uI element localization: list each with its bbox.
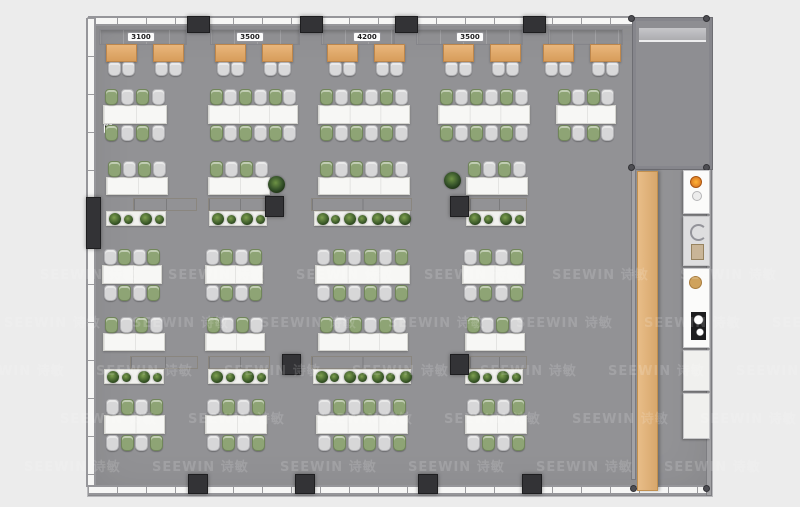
watermark-text: SEEWIN 诗敏 xyxy=(0,360,65,379)
plant-icon xyxy=(226,373,235,382)
office-chair xyxy=(207,399,220,415)
structural-column xyxy=(282,354,301,375)
plant-icon xyxy=(386,373,395,382)
office-chair xyxy=(393,399,406,415)
storage-panel xyxy=(469,198,527,211)
appliance-cabinet xyxy=(683,393,710,439)
office-chair xyxy=(364,317,377,333)
office-chair xyxy=(147,249,160,265)
booth-chair xyxy=(376,62,389,76)
plant-icon xyxy=(109,213,121,225)
office-chair xyxy=(249,285,262,301)
office-chair xyxy=(348,399,361,415)
plant-icon xyxy=(483,373,492,382)
storage-panel xyxy=(311,198,412,211)
office-chair xyxy=(455,89,468,105)
office-chair xyxy=(269,89,282,105)
office-chair xyxy=(379,317,392,333)
office-chair xyxy=(320,125,333,141)
office-chair xyxy=(335,161,348,177)
booth-chair xyxy=(445,62,458,76)
office-chair xyxy=(440,89,453,105)
office-chair xyxy=(150,399,163,415)
office-chair xyxy=(221,317,234,333)
office-chair xyxy=(210,89,223,105)
office-chair xyxy=(150,435,163,451)
watermark-text: SEEWIN 诗敏 xyxy=(736,360,800,379)
top-wall-window xyxy=(88,16,634,26)
desk-table xyxy=(318,105,410,124)
office-chair xyxy=(318,399,331,415)
office-chair xyxy=(105,89,118,105)
desk-table xyxy=(205,265,263,284)
plant-icon xyxy=(155,215,164,224)
plant-icon xyxy=(372,213,384,225)
office-chair xyxy=(255,161,268,177)
office-chair xyxy=(587,125,600,141)
office-chair xyxy=(333,285,346,301)
office-chair xyxy=(393,435,406,451)
office-chair xyxy=(515,125,528,141)
booth-chair xyxy=(155,62,168,76)
office-chair xyxy=(482,399,495,415)
plant-icon xyxy=(399,213,411,225)
office-chair xyxy=(207,317,220,333)
booth-table xyxy=(543,44,574,62)
plant-icon xyxy=(317,213,329,225)
office-chair xyxy=(365,125,378,141)
office-chair xyxy=(136,89,149,105)
office-chair xyxy=(470,89,483,105)
office-chair xyxy=(147,285,160,301)
dimension-label: 4200 xyxy=(353,32,381,42)
office-chair xyxy=(104,285,117,301)
plant-icon xyxy=(242,371,254,383)
desk-table xyxy=(315,265,410,284)
booth-chair xyxy=(169,62,182,76)
office-chair xyxy=(106,435,119,451)
office-chair xyxy=(558,89,571,105)
office-chair xyxy=(150,317,163,333)
plant-icon xyxy=(122,373,131,382)
office-chair xyxy=(123,161,136,177)
plant-icon xyxy=(330,373,339,382)
office-chair xyxy=(220,249,233,265)
office-chair xyxy=(365,89,378,105)
structural-column xyxy=(522,474,542,494)
office-chair xyxy=(135,317,148,333)
desk-table xyxy=(208,105,298,124)
office-chair xyxy=(108,161,121,177)
office-chair xyxy=(350,125,363,141)
booth-chair xyxy=(108,62,121,76)
plant-icon xyxy=(107,371,119,383)
office-chair xyxy=(512,399,525,415)
office-chair xyxy=(495,285,508,301)
appliance-cabinet xyxy=(683,350,710,391)
desk-table xyxy=(462,265,525,284)
office-chair xyxy=(317,249,330,265)
booth-chair xyxy=(606,62,619,76)
office-chair xyxy=(468,161,481,177)
plant-icon xyxy=(227,215,236,224)
office-chair xyxy=(485,89,498,105)
booth-table xyxy=(262,44,293,62)
office-chair xyxy=(105,125,118,141)
structural-column xyxy=(395,16,418,33)
office-chair xyxy=(350,161,363,177)
booth-chair xyxy=(122,62,135,76)
storage-panel xyxy=(208,356,270,369)
office-chair xyxy=(467,317,480,333)
desk-table xyxy=(103,333,165,351)
meeting-room xyxy=(633,18,712,169)
office-chair xyxy=(225,161,238,177)
booth-chair xyxy=(231,62,244,76)
watermark-text: SEEWIN 诗敏 xyxy=(772,312,800,331)
office-chair xyxy=(283,89,296,105)
office-chair xyxy=(349,317,362,333)
office-chair xyxy=(235,285,248,301)
plant-icon xyxy=(497,371,509,383)
office-chair xyxy=(240,161,253,177)
office-chair xyxy=(495,249,508,265)
office-chair xyxy=(601,89,614,105)
office-chair xyxy=(152,89,165,105)
office-chair xyxy=(237,399,250,415)
office-chair xyxy=(363,399,376,415)
booth-table xyxy=(490,44,521,62)
plant-icon xyxy=(153,373,162,382)
storage-panel xyxy=(311,356,412,369)
office-chair xyxy=(210,161,223,177)
column-dot xyxy=(628,164,635,171)
dimension-label: 3500 xyxy=(456,32,484,42)
structural-column xyxy=(265,196,284,217)
office-chair xyxy=(464,249,477,265)
office-chair xyxy=(482,435,495,451)
office-chair xyxy=(135,435,148,451)
office-chair xyxy=(479,249,492,265)
room-counter xyxy=(639,28,706,42)
office-chair xyxy=(121,89,134,105)
office-chair xyxy=(380,125,393,141)
booth-chair xyxy=(343,62,356,76)
plant-icon xyxy=(372,371,384,383)
desk-table xyxy=(316,415,408,434)
office-chair xyxy=(121,399,134,415)
appliance-coffee xyxy=(683,268,710,348)
office-chair xyxy=(364,285,377,301)
office-chair xyxy=(121,435,134,451)
plant-icon xyxy=(211,371,223,383)
column-dot xyxy=(628,15,635,22)
desk-table xyxy=(208,177,270,195)
office-chair xyxy=(464,285,477,301)
structural-column xyxy=(187,16,210,33)
booth-table xyxy=(374,44,405,62)
storage-panel xyxy=(208,198,270,211)
office-chair xyxy=(395,89,408,105)
office-chair xyxy=(104,249,117,265)
office-chair xyxy=(483,161,496,177)
office-chair xyxy=(135,399,148,415)
office-chair xyxy=(380,89,393,105)
booth-chair xyxy=(217,62,230,76)
office-chair xyxy=(206,285,219,301)
office-chair xyxy=(467,399,480,415)
booth-chair xyxy=(545,62,558,76)
office-chair xyxy=(379,249,392,265)
bottom-wall-window xyxy=(88,485,712,495)
booth-chair xyxy=(329,62,342,76)
office-chair xyxy=(153,161,166,177)
office-chair xyxy=(587,89,600,105)
desk-table xyxy=(106,177,168,195)
structural-column xyxy=(450,196,469,217)
office-chair xyxy=(497,435,510,451)
desk-table xyxy=(318,333,408,351)
structural-column xyxy=(188,474,208,494)
watermark-text: SEEWIN 诗敏 xyxy=(700,408,797,427)
plant-icon xyxy=(469,213,481,225)
office-chair xyxy=(317,285,330,301)
office-chair xyxy=(498,161,511,177)
storage-panel xyxy=(133,198,197,211)
office-chair xyxy=(133,249,146,265)
office-chair xyxy=(380,161,393,177)
office-chair xyxy=(121,125,134,141)
office-chair xyxy=(378,435,391,451)
office-chair xyxy=(333,399,346,415)
floor-plan: 7800 3100350042003500 xyxy=(88,18,712,496)
office-chair xyxy=(395,161,408,177)
desk-table xyxy=(438,105,530,124)
plant-icon xyxy=(468,371,480,383)
office-chair xyxy=(379,285,392,301)
office-chair xyxy=(365,161,378,177)
corridor-partition-wall xyxy=(631,168,636,480)
office-chair xyxy=(393,317,406,333)
office-chair xyxy=(335,125,348,141)
office-chair xyxy=(254,125,267,141)
booth-chair xyxy=(390,62,403,76)
tree-plant-icon xyxy=(444,172,461,189)
dimension-label: 3100 xyxy=(127,32,155,42)
office-chair xyxy=(510,317,523,333)
desk-table xyxy=(102,265,162,284)
page: 7800 3100350042003500 SEEWIN 诗敏SEEWIN 诗敏… xyxy=(0,0,800,507)
office-chair xyxy=(513,161,526,177)
column-dot xyxy=(703,15,710,22)
plant-icon xyxy=(257,373,266,382)
office-chair xyxy=(350,89,363,105)
structural-column xyxy=(295,474,315,494)
booth-chair xyxy=(592,62,605,76)
office-chair xyxy=(348,249,361,265)
office-chair xyxy=(500,89,513,105)
plant-icon xyxy=(515,215,524,224)
desk-table xyxy=(466,177,528,195)
office-chair xyxy=(118,285,131,301)
storage-panel xyxy=(469,356,527,369)
plant-icon xyxy=(241,213,253,225)
office-chair xyxy=(320,89,333,105)
office-chair xyxy=(497,399,510,415)
office-chair xyxy=(320,317,333,333)
booth-chair xyxy=(559,62,572,76)
tree-plant-icon xyxy=(268,176,285,193)
booth-table xyxy=(106,44,137,62)
plant-icon xyxy=(358,215,367,224)
booth-chair xyxy=(459,62,472,76)
desk-table xyxy=(465,415,527,434)
plant-icon xyxy=(344,371,356,383)
office-chair xyxy=(252,435,265,451)
appliance-cooktop xyxy=(683,170,710,214)
booth-chair xyxy=(506,62,519,76)
structural-column xyxy=(86,197,101,249)
plant-icon xyxy=(140,213,152,225)
office-chair xyxy=(224,89,237,105)
office-chair xyxy=(152,125,165,141)
plant-icon xyxy=(512,373,521,382)
office-chair xyxy=(235,249,248,265)
office-chair xyxy=(222,435,235,451)
office-chair xyxy=(364,249,377,265)
office-chair xyxy=(440,125,453,141)
plant-icon xyxy=(124,215,133,224)
booth-table xyxy=(590,44,621,62)
storage-panel xyxy=(130,356,198,369)
office-chair xyxy=(252,399,265,415)
office-chair xyxy=(479,285,492,301)
office-chair xyxy=(320,161,333,177)
office-chair xyxy=(236,317,249,333)
office-chair xyxy=(207,435,220,451)
office-chair xyxy=(395,285,408,301)
office-chair xyxy=(210,125,223,141)
plant-icon xyxy=(331,215,340,224)
booth-chair xyxy=(264,62,277,76)
office-chair xyxy=(138,161,151,177)
desk-table xyxy=(103,105,167,124)
office-chair xyxy=(515,89,528,105)
office-chair xyxy=(455,125,468,141)
bench-seat xyxy=(548,29,623,45)
office-chair xyxy=(120,317,133,333)
office-chair xyxy=(500,125,513,141)
office-chair xyxy=(250,317,263,333)
office-chair xyxy=(395,249,408,265)
office-chair xyxy=(333,435,346,451)
office-chair xyxy=(348,435,361,451)
desk-table xyxy=(556,105,616,124)
booth-chair xyxy=(278,62,291,76)
plant-icon xyxy=(256,215,265,224)
plant-icon xyxy=(138,371,150,383)
desk-table xyxy=(205,333,265,351)
structural-column xyxy=(300,16,323,33)
office-chair xyxy=(510,285,523,301)
office-chair xyxy=(558,125,571,141)
desk-table xyxy=(318,177,410,195)
desk-table xyxy=(465,333,525,351)
office-chair xyxy=(106,399,119,415)
office-chair xyxy=(334,317,347,333)
office-chair xyxy=(239,89,252,105)
office-chair xyxy=(572,125,585,141)
office-chair xyxy=(481,317,494,333)
office-chair xyxy=(224,125,237,141)
office-chair xyxy=(254,89,267,105)
plant-icon xyxy=(500,213,512,225)
structural-column xyxy=(418,474,438,494)
dimension-label: 3500 xyxy=(236,32,264,42)
office-chair xyxy=(572,89,585,105)
office-chair xyxy=(485,125,498,141)
office-chair xyxy=(467,435,480,451)
office-chair xyxy=(318,435,331,451)
office-chair xyxy=(335,89,348,105)
office-chair xyxy=(512,435,525,451)
desk-table xyxy=(205,415,267,434)
office-chair xyxy=(601,125,614,141)
office-chair xyxy=(283,125,296,141)
office-chair xyxy=(269,125,282,141)
booth-chair xyxy=(492,62,505,76)
office-chair xyxy=(496,317,509,333)
plant-icon xyxy=(212,213,224,225)
office-chair xyxy=(510,249,523,265)
plant-icon xyxy=(344,213,356,225)
booth-table xyxy=(215,44,246,62)
office-chair xyxy=(206,249,219,265)
plant-icon xyxy=(358,373,367,382)
office-chair xyxy=(222,399,235,415)
office-chair xyxy=(363,435,376,451)
appliance-sink xyxy=(683,216,710,266)
plant-icon xyxy=(400,371,412,383)
desk-table xyxy=(104,415,165,434)
plant-icon xyxy=(385,215,394,224)
booth-table xyxy=(327,44,358,62)
office-chair xyxy=(133,285,146,301)
office-chair xyxy=(395,125,408,141)
left-wall-window xyxy=(86,18,96,487)
structural-column xyxy=(450,354,469,375)
plant-icon xyxy=(316,371,328,383)
office-chair xyxy=(378,399,391,415)
office-chair xyxy=(333,249,346,265)
wood-bar-counter xyxy=(637,171,658,491)
column-dot xyxy=(703,485,710,492)
office-chair xyxy=(239,125,252,141)
booth-table xyxy=(153,44,184,62)
column-dot xyxy=(630,485,637,492)
office-chair xyxy=(105,317,118,333)
office-chair xyxy=(249,249,262,265)
office-chair xyxy=(136,125,149,141)
plant-icon xyxy=(484,215,493,224)
office-chair xyxy=(348,285,361,301)
structural-column xyxy=(523,16,546,33)
office-chair xyxy=(220,285,233,301)
office-chair xyxy=(237,435,250,451)
office-chair xyxy=(470,125,483,141)
booth-table xyxy=(443,44,474,62)
office-chair xyxy=(118,249,131,265)
